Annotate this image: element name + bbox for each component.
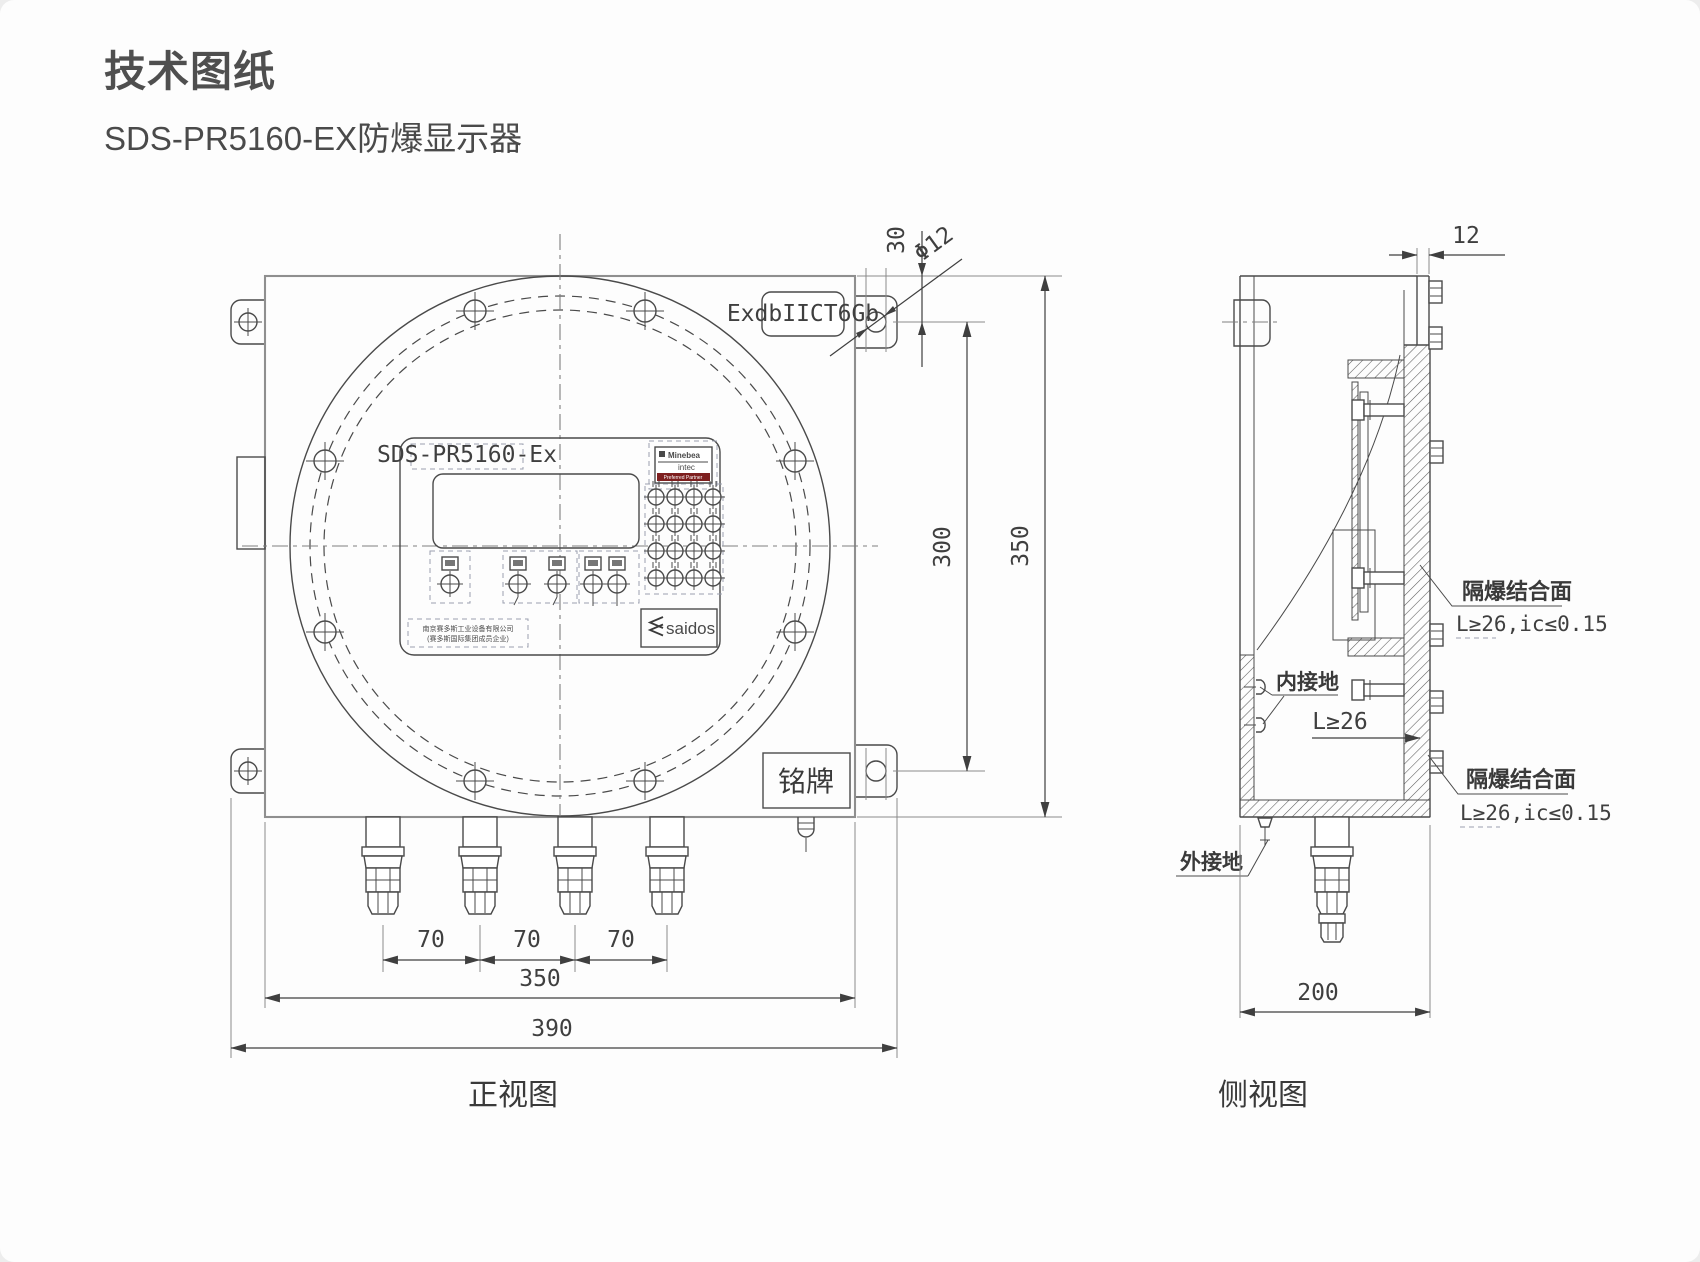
- side-cable-gland: [1311, 817, 1353, 942]
- company-line2: (赛多斯国际集团成员企业): [427, 634, 509, 643]
- joint-top-spec: L≥26,ic≤0.15: [1456, 612, 1608, 636]
- side-conduit-boss: [237, 457, 265, 549]
- cover-assembly: [1257, 276, 1430, 817]
- mounting-lug-top-left: [231, 300, 265, 344]
- side-view-caption: 侧视图: [1218, 1079, 1308, 1112]
- technical-drawing-canvas: ExdbIICT6Gb SDS-PR5160-Ex Minebea intec: [0, 0, 1700, 1262]
- cable-gland: [362, 817, 404, 914]
- technical-drawing-page: 技术图纸 SDS-PR5160-EX防爆显示器: [0, 0, 1700, 1262]
- keypad: [644, 481, 725, 594]
- cover-screws-right: [1429, 281, 1443, 773]
- brand-line2: intec: [678, 463, 695, 472]
- brand-banner: Preferred Partner: [664, 475, 703, 481]
- nameplate-text: 铭牌: [778, 766, 834, 797]
- dim-70-2: 70: [513, 927, 541, 953]
- saidos-glyph-icon: [650, 617, 663, 636]
- cover-thickness-dim: 12: [1389, 223, 1505, 274]
- dim-30: 30: [884, 226, 910, 254]
- side-mounting-lug: [1222, 300, 1282, 346]
- dim-200: 200: [1297, 980, 1339, 1006]
- side-view: L≥26 12 隔爆结合面 L≥26,ic≤0.15 隔爆结合面: [1176, 223, 1612, 1112]
- inner-ground-text: 内接地: [1276, 670, 1339, 694]
- dim-350-width: 350: [519, 966, 561, 992]
- dim-12: 12: [1452, 223, 1480, 249]
- company-label-box: 南京赛多斯工业设备有限公司 (赛多斯国际集团成员企业): [408, 619, 528, 647]
- saidos-logo-box: saidos: [641, 609, 717, 647]
- cover-fixing-screw: [798, 817, 814, 852]
- cable-gland: [554, 817, 596, 914]
- joint-label-top: 隔爆结合面 L≥26,ic≤0.15: [1420, 565, 1608, 638]
- saidos-text: saidos: [666, 619, 715, 638]
- joint-bottom-title: 隔爆结合面: [1466, 767, 1576, 792]
- cable-gland: [459, 817, 501, 914]
- cover-dome-profile: [1257, 355, 1400, 650]
- front-view-caption: 正视图: [468, 1079, 558, 1112]
- nameplate: 铭牌: [763, 753, 850, 808]
- function-buttons: [430, 551, 639, 606]
- joint-label-bottom: 隔爆结合面 L≥26,ic≤0.15: [1428, 755, 1612, 827]
- dim-300: 300: [930, 526, 956, 568]
- front-cable-glands: [362, 817, 688, 914]
- function-button: [437, 557, 463, 597]
- back-wall-section: [1240, 655, 1254, 800]
- dim-joint-length: L≥26: [1312, 709, 1367, 735]
- dim-70-3: 70: [607, 927, 635, 953]
- mounting-lug-bottom-left: [231, 749, 265, 793]
- front-view-dimensions: 30 Φ12 300 350 70: [231, 222, 1062, 1058]
- outer-ground-text: 外接地: [1180, 850, 1243, 874]
- dim-390: 390: [531, 1016, 573, 1042]
- external-ground-screw: [1258, 818, 1272, 846]
- dim-350-height: 350: [1008, 525, 1034, 567]
- function-button: [505, 557, 531, 605]
- certification-label: ExdbIICT6Gb: [727, 292, 879, 336]
- function-button: [580, 557, 606, 606]
- front-view: ExdbIICT6Gb SDS-PR5160-Ex Minebea intec: [231, 222, 1062, 1112]
- bottom-wall-section: [1240, 800, 1430, 817]
- dim-70-1: 70: [417, 927, 445, 953]
- mounting-lug-bottom-right: [855, 745, 897, 800]
- outer-ground-label: 外接地: [1176, 840, 1268, 876]
- cable-gland: [646, 817, 688, 914]
- joint-bottom-spec: L≥26,ic≤0.15: [1460, 801, 1612, 825]
- function-button: [604, 557, 630, 606]
- dim-hole-dia: Φ12: [909, 222, 958, 267]
- brand-line1: Minebea: [668, 451, 701, 460]
- certification-text: ExdbIICT6Gb: [727, 301, 879, 327]
- company-line1: 南京赛多斯工业设备有限公司: [423, 624, 514, 633]
- display-window: [433, 474, 639, 548]
- model-label: SDS-PR5160-Ex: [377, 442, 557, 468]
- function-button: [544, 557, 570, 605]
- joint-top-title: 隔爆结合面: [1462, 579, 1572, 604]
